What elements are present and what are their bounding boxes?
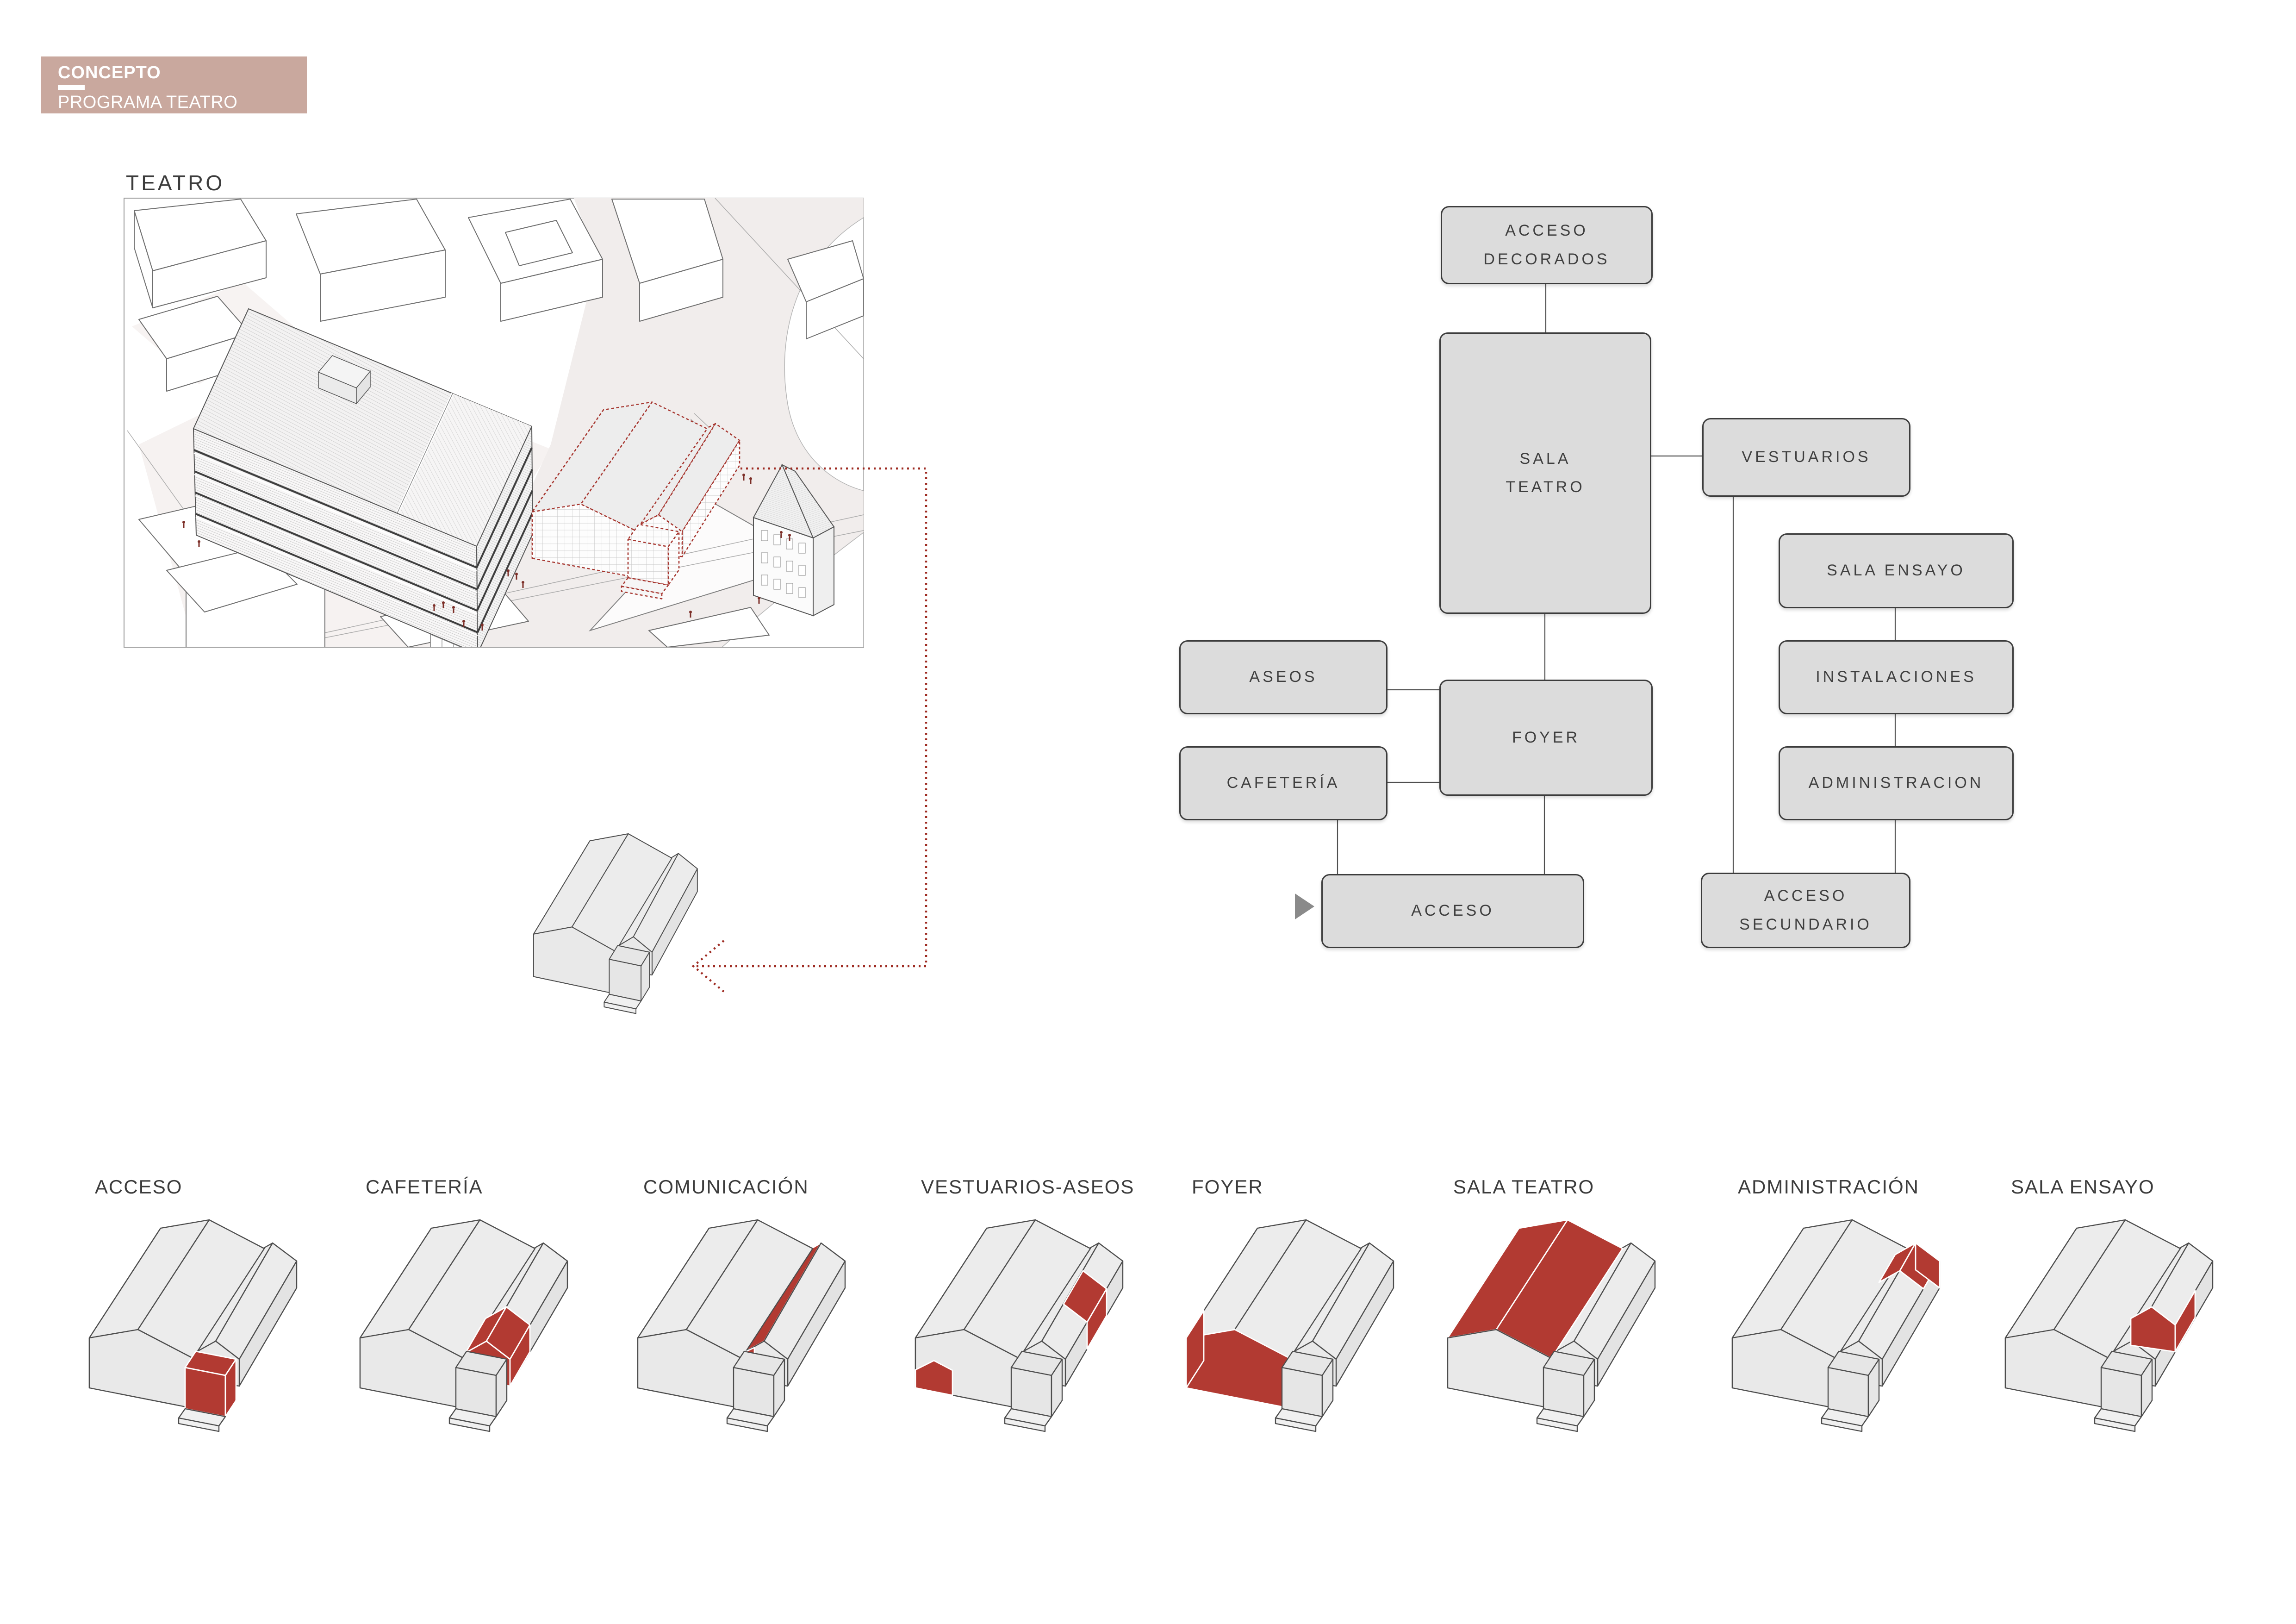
- presentation-board: CONCEPTO PROGRAMA TEATRO TEATRO ACCESO D…: [0, 0, 2296, 1624]
- flow-box-label: FOYER: [1512, 724, 1580, 752]
- legend-axon-administracion: [1728, 1217, 1945, 1434]
- legend-axon-foyer: [1182, 1217, 1399, 1434]
- legend-label: CAFETERÍA: [366, 1176, 615, 1198]
- small-axon-building: [534, 834, 697, 1013]
- legend-label: FOYER: [1192, 1176, 1441, 1198]
- legend-label: VESTUARIOS-ASEOS: [921, 1176, 1170, 1198]
- legend-item-foyer: FOYER: [1182, 1176, 1441, 1491]
- page-subtitle: PROGRAMA TEATRO: [58, 93, 237, 112]
- flow-box-label: ASEOS: [1249, 663, 1317, 691]
- flow-box-acceso-secundario: ACCESO SECUNDARIO: [1701, 873, 1910, 948]
- flow-box-administracion: ADMINISTRACION: [1779, 746, 2014, 820]
- site-plan-title: TEATRO: [126, 170, 224, 195]
- cube-front-face: [185, 1368, 225, 1417]
- cube-front-face: [2101, 1368, 2141, 1417]
- page-title: CONCEPTO: [58, 63, 161, 83]
- header-badge: CONCEPTO PROGRAMA TEATRO: [41, 56, 307, 113]
- flow-box-acceso-decorados: ACCESO DECORADOS: [1441, 206, 1653, 284]
- flow-box-sala-teatro: SALA TEATRO: [1439, 332, 1651, 614]
- flow-box-label: VESTUARIOS: [1742, 443, 1871, 471]
- flow-box-label: DECORADOS: [1483, 245, 1610, 274]
- legend-label: ADMINISTRACIÓN: [1738, 1176, 1987, 1198]
- flow-box-label: TEATRO: [1506, 473, 1585, 501]
- legend-axon-vestuarios-aseos: [911, 1217, 1128, 1434]
- cube-front-face: [609, 959, 641, 1001]
- title-underline: [58, 85, 85, 90]
- cube-front-face: [734, 1368, 774, 1417]
- flow-box-label: INSTALACIONES: [1816, 663, 1977, 691]
- flow-box-label: SALA ENSAYO: [1827, 556, 1966, 585]
- legend-label: COMUNICACIÓN: [643, 1176, 892, 1198]
- flow-box-sala-ensayo: SALA ENSAYO: [1779, 533, 2014, 608]
- legend-axon-acceso: [85, 1217, 302, 1434]
- cube-front-face: [1543, 1368, 1584, 1417]
- legend-label: ACCESO: [95, 1176, 344, 1198]
- site-plan-drawing: [127, 198, 864, 674]
- flow-box-foyer: FOYER: [1439, 680, 1653, 796]
- legend-item-vestuarios-aseos: VESTUARIOS-ASEOS: [911, 1176, 1170, 1491]
- acceso-arrow-marker: [1295, 893, 1314, 919]
- flow-box-label: SALA: [1520, 445, 1571, 473]
- flow-box-vestuarios: VESTUARIOS: [1702, 418, 1910, 497]
- flow-box-acceso: ACCESO: [1321, 874, 1584, 948]
- flow-box-cafeteria: CAFETERÍA: [1179, 746, 1388, 820]
- cube-front-face: [1011, 1368, 1052, 1417]
- cube-front-face: [628, 539, 668, 585]
- flow-box-instalaciones: INSTALACIONES: [1779, 640, 2014, 714]
- legend-axon-sala-teatro: [1443, 1217, 1661, 1434]
- flow-box-label: ACCESO: [1764, 882, 1848, 910]
- cube-front-face: [1282, 1368, 1322, 1417]
- legend-item-sala-ensayo: SALA ENSAYO: [2001, 1176, 2260, 1491]
- flow-box-label: ADMINISTRACION: [1809, 769, 1984, 797]
- legend-axon-comunicacion: [633, 1217, 851, 1434]
- legend-item-administracion: ADMINISTRACIÓN: [1728, 1176, 1987, 1491]
- cube-front-face: [1828, 1368, 1868, 1417]
- legend-item-acceso: ACCESO: [85, 1176, 344, 1491]
- flow-box-label: ACCESO: [1411, 897, 1494, 925]
- flow-box-aseos: ASEOS: [1179, 640, 1388, 714]
- legend-label: SALA TEATRO: [1453, 1176, 1702, 1198]
- legend-item-cafeteria: CAFETERÍA: [355, 1176, 615, 1491]
- legend-axon-cafeteria: [355, 1217, 573, 1434]
- legend-item-sala-teatro: SALA TEATRO: [1443, 1176, 1702, 1491]
- cube-front-face: [456, 1368, 496, 1417]
- legend-item-comunicacion: COMUNICACIÓN: [633, 1176, 892, 1491]
- legend-label: SALA ENSAYO: [2011, 1176, 2260, 1198]
- flow-box-label: SECUNDARIO: [1739, 911, 1872, 939]
- flow-box-label: ACCESO: [1505, 217, 1588, 245]
- flow-box-label: CAFETERÍA: [1227, 769, 1340, 797]
- legend-axon-sala-ensayo: [2001, 1217, 2218, 1434]
